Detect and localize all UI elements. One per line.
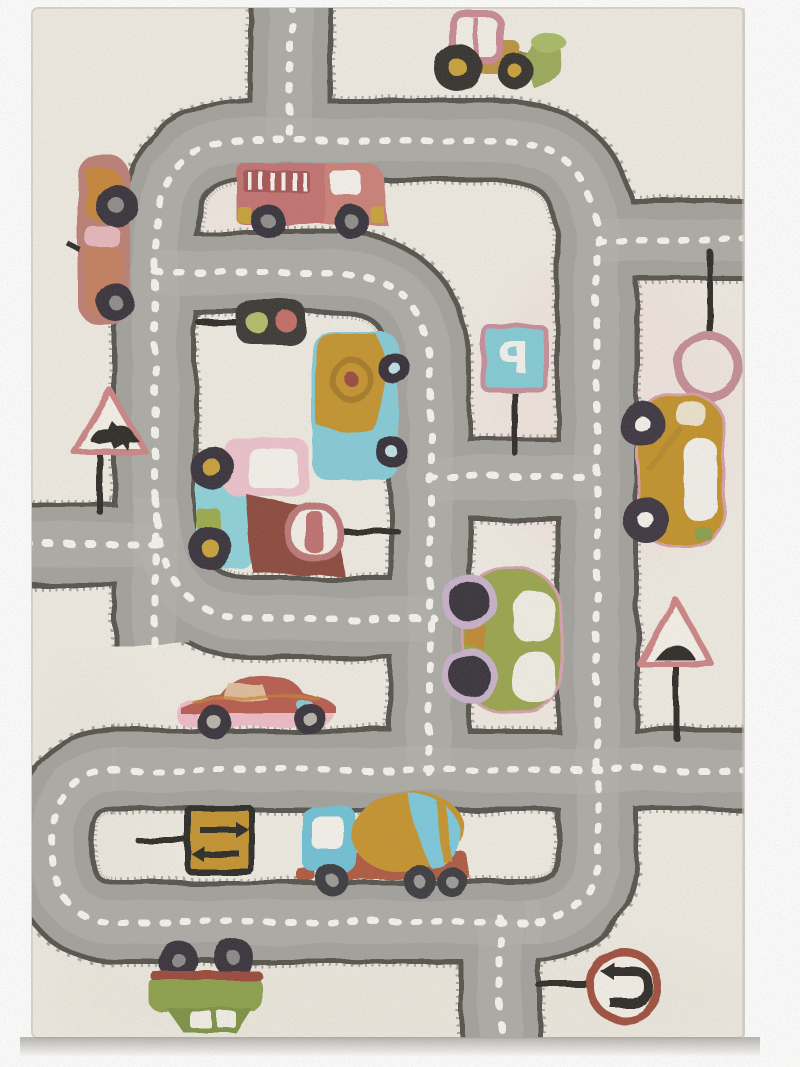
rug-product-photo: P <box>0 0 800 1067</box>
rug-fiber-texture <box>32 8 744 1038</box>
rug-right-edge <box>742 8 745 1038</box>
rug-shadow <box>20 1037 760 1057</box>
rug-illustration: P <box>0 0 800 1067</box>
